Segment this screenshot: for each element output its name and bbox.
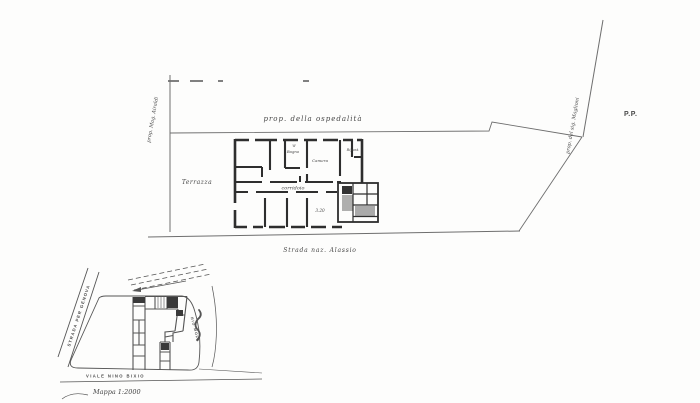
alcove-wall — [235, 167, 262, 177]
footprint-hatch — [158, 297, 164, 308]
right-upper-boundary — [583, 20, 603, 137]
label-corridor: corridoio — [281, 186, 304, 192]
label-bath-w: W — [292, 144, 296, 148]
label-top-property: prop. della ospedalità — [263, 115, 362, 123]
footprint-dark-cell-2 — [167, 297, 178, 308]
label-room-center: Camera — [312, 158, 329, 163]
stair-rungs-horizontal — [342, 196, 353, 210]
map-label-road-upper: STRADA PER GENOVA — [66, 284, 91, 347]
building-footprint — [133, 297, 187, 371]
footprint-top-arm — [145, 297, 187, 310]
street-line — [148, 231, 520, 237]
label-right-property: prop. del sig. Maglioni — [565, 97, 581, 155]
label-pp: P.P. — [624, 111, 637, 118]
partitions-bottom-band — [265, 198, 307, 227]
label-closet: Ripost. — [346, 148, 360, 152]
label-dimension: 3.20 — [315, 208, 325, 213]
footprint-dark-cell-4 — [161, 343, 169, 350]
viale-outer-line — [60, 379, 262, 382]
stair-dark-cell — [342, 186, 352, 194]
railway-dashes — [128, 264, 211, 290]
site-map: STRADA PER GENOVA VIALE NINO BIXIO RIO M… — [58, 264, 262, 399]
viale-extension — [199, 369, 262, 373]
label-left-property: prop. Mag. Airaldi — [146, 96, 160, 143]
road-inner-line — [68, 272, 99, 367]
map-label-scale: Mappa 1:2000 — [92, 388, 141, 396]
bath-wall — [285, 168, 300, 182]
scale-flourish — [62, 394, 88, 399]
stair-rungs-vertical — [356, 206, 374, 216]
right-lower-boundary — [519, 137, 582, 231]
road-outer-line — [58, 268, 88, 357]
staircase — [338, 183, 378, 222]
top-property-line — [170, 122, 582, 137]
arrow-head — [132, 287, 141, 292]
footprint-dark-cell-1 — [133, 297, 145, 303]
building-plan — [235, 139, 378, 228]
footprint-dark-cell-3 — [176, 310, 183, 316]
map-label-road-lower: VIALE NINO BIXIO — [86, 374, 145, 379]
partitions-top-band — [270, 140, 352, 182]
stream-bank-line — [212, 286, 216, 367]
railway — [128, 264, 211, 292]
label-bath: Bagno — [286, 149, 300, 154]
footprint-left-strip — [133, 297, 145, 370]
label-street: Strada naz. Alassio — [283, 247, 356, 254]
label-terrace: Terrazza — [182, 179, 212, 186]
arrow-line — [140, 281, 186, 290]
stair-block-partitions — [353, 183, 378, 222]
scanned-plan-drawing: prop. della ospedalità prop. Mag. Airald… — [0, 0, 700, 403]
scanned-plan-page: prop. della ospedalità prop. Mag. Airald… — [0, 0, 700, 403]
